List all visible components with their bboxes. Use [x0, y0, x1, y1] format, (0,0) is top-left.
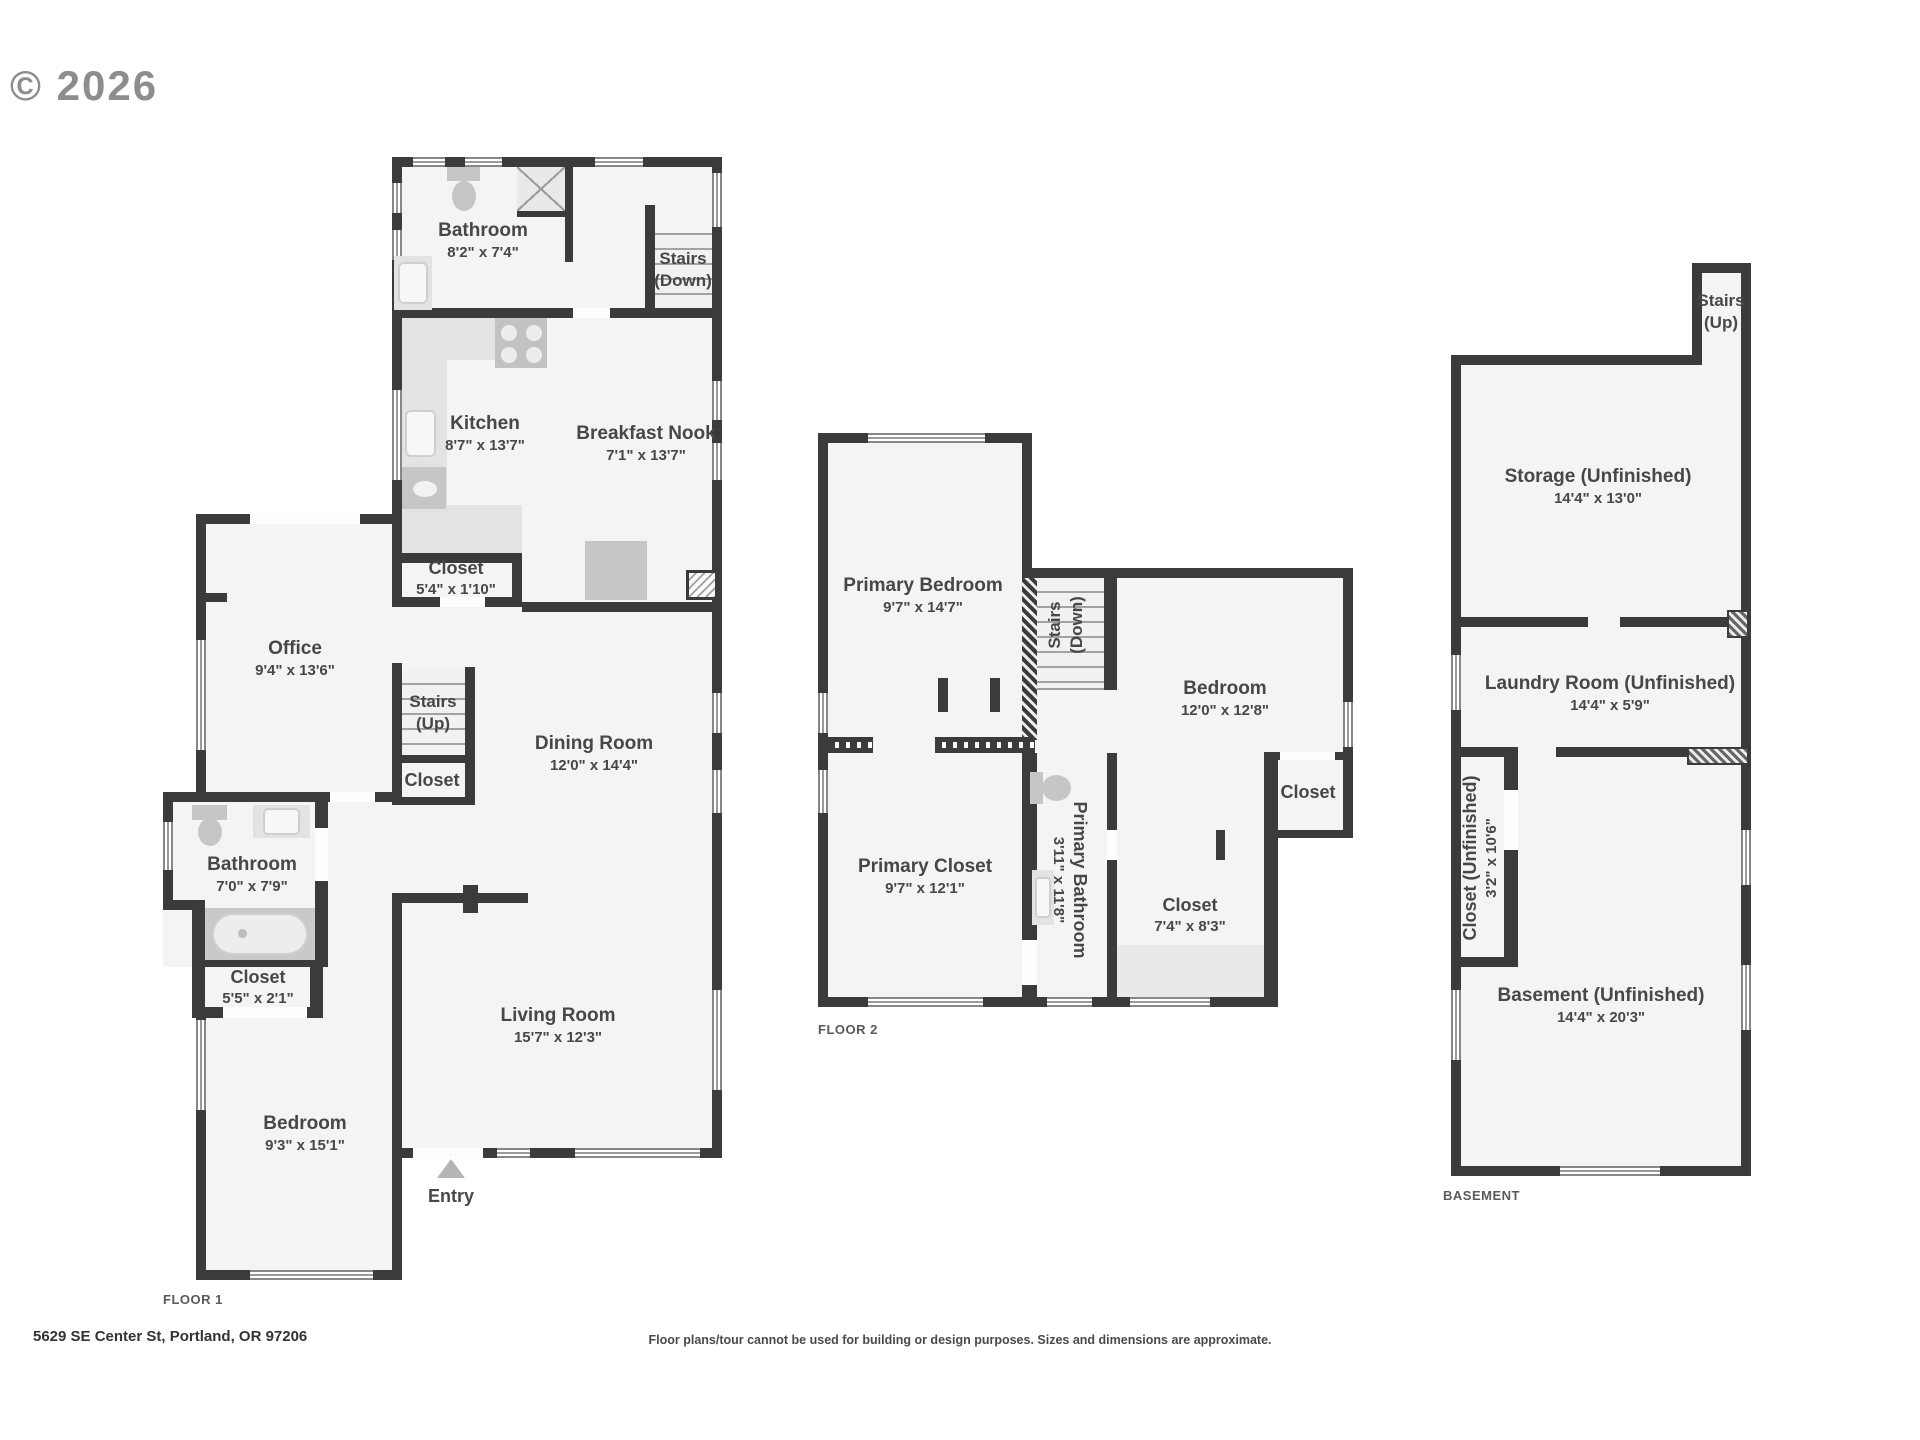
- shower-icon: [517, 167, 565, 211]
- window: [712, 693, 722, 733]
- room-label-closet-f2: Closet 7'4" x 8'3": [1154, 895, 1225, 937]
- wall: [1451, 957, 1518, 967]
- door-opening: [250, 514, 360, 524]
- window: [1451, 655, 1461, 710]
- wall: [1104, 568, 1117, 690]
- stair-edge: [1037, 688, 1104, 690]
- wall-pillar: [1216, 830, 1225, 860]
- window: [712, 173, 722, 227]
- wall: [1022, 433, 1032, 578]
- window: [250, 1270, 373, 1280]
- window: [1741, 830, 1751, 885]
- window: [575, 1148, 700, 1158]
- toilet-icon: [447, 167, 480, 181]
- wall: [1620, 617, 1730, 627]
- window: [868, 997, 983, 1007]
- window: [712, 990, 722, 1090]
- window: [497, 1148, 530, 1158]
- wall: [1451, 355, 1702, 365]
- room-label-bathroom-top: Bathroom 8'2" x 7'4": [438, 219, 528, 263]
- wall: [512, 553, 522, 607]
- wall: [1504, 747, 1518, 967]
- door-opening: [1280, 752, 1335, 760]
- window: [196, 1020, 206, 1110]
- window: [1343, 702, 1353, 747]
- stove-icon: [495, 318, 547, 368]
- disclaimer-text: Floor plans/tour cannot be used for buil…: [648, 1333, 1271, 1347]
- wall-hatched: [1687, 747, 1749, 765]
- wall: [392, 797, 475, 805]
- entry-door-opening: [413, 1148, 483, 1158]
- window: [1560, 1166, 1660, 1176]
- room-fill: [818, 433, 1032, 1007]
- wall: [196, 593, 227, 602]
- wall: [517, 211, 569, 217]
- refrigerator-icon: [585, 541, 647, 600]
- room-label-breakfast-nook: Breakfast Nook 7'1" x 13'7": [576, 422, 715, 466]
- room-label-living-room: Living Room 15'7" x 12'3": [500, 1004, 615, 1048]
- bathtub-drain: [238, 929, 247, 938]
- address-text: 5629 SE Center St, Portland, OR 97206: [33, 1328, 307, 1345]
- wall: [465, 667, 475, 763]
- toilet-icon: [452, 181, 476, 211]
- kitchen-counter: [402, 505, 522, 553]
- window: [392, 390, 402, 480]
- window: [712, 381, 722, 420]
- room-label-bedroom-f2: Bedroom 12'0" x 12'8": [1181, 677, 1269, 721]
- room-label-stairs-down: Stairs (Down): [654, 248, 712, 292]
- basement-label: BASEMENT: [1443, 1188, 1520, 1203]
- entry-arrow-icon: [437, 1159, 465, 1178]
- window: [465, 157, 502, 167]
- dishwasher-icon: [413, 481, 437, 497]
- wall: [1556, 747, 1687, 757]
- room-label-stairs-up-basement: Stairs (Up): [1697, 290, 1744, 334]
- entry-label: Entry: [428, 1186, 474, 1208]
- wall: [1022, 568, 1353, 578]
- chimney: [686, 570, 718, 600]
- room-fill: [318, 795, 402, 1016]
- wall-pillar: [990, 678, 1000, 712]
- floor1-label: FLOOR 1: [163, 1292, 223, 1307]
- wall-pocket: [935, 737, 1035, 753]
- window: [595, 157, 643, 167]
- door-opening: [1107, 830, 1117, 860]
- window: [196, 640, 206, 750]
- room-label-closet-bath: Closet 5'5" x 2'1": [222, 967, 293, 1009]
- wall: [392, 663, 402, 802]
- copyright-watermark: © 2026: [10, 62, 158, 110]
- window: [868, 433, 985, 443]
- room-label-stairs-up: Stairs (Up): [409, 691, 456, 735]
- toilet-icon: [1042, 775, 1071, 801]
- window: [818, 770, 828, 813]
- room-label-bedroom: Bedroom 9'3" x 15'1": [263, 1112, 346, 1156]
- room-label-basement-room: Basement (Unfinished) 14'4" x 20'3": [1498, 984, 1705, 1028]
- room-label-bathroom: Bathroom 7'0" x 7'9": [207, 853, 297, 897]
- wall: [1107, 753, 1117, 1007]
- door-opening: [1504, 790, 1518, 850]
- floor-shading: [1117, 945, 1278, 1002]
- wall: [392, 893, 402, 1280]
- wall: [315, 795, 328, 967]
- window: [1130, 997, 1210, 1007]
- room-label-laundry: Laundry Room (Unfinished) 14'4" x 5'9": [1485, 672, 1735, 716]
- sink-icon: [263, 808, 300, 835]
- wall: [1264, 838, 1278, 1007]
- wall: [1264, 752, 1278, 838]
- wall: [522, 602, 722, 612]
- room-label-closet-hall: Closet: [404, 770, 459, 792]
- wall-hatched: [1022, 578, 1037, 740]
- wall-pocket: [828, 737, 873, 753]
- window: [413, 157, 445, 167]
- wall-pillar: [938, 678, 948, 712]
- kitchen-sink-icon: [405, 410, 436, 457]
- room-label-closet-kitchen: Closet 5'4" x 1'10": [416, 558, 496, 600]
- room-label-stairs-down-f2: Stairs (Down): [1044, 596, 1088, 654]
- room-label-primary-closet: Primary Closet 9'7" x 12'1": [858, 855, 992, 899]
- wall: [392, 308, 722, 318]
- window: [163, 822, 173, 870]
- door-opening: [1022, 940, 1037, 985]
- wall: [1451, 617, 1588, 627]
- wall: [1264, 830, 1353, 838]
- room-label-primary-bathroom: Primary Bathroom 3'11" x 11'8": [1048, 801, 1090, 958]
- room-label-closet-bedroom-f2: Closet: [1280, 782, 1335, 804]
- window: [1451, 990, 1461, 1060]
- window: [1047, 997, 1092, 1007]
- sink-icon: [398, 262, 428, 304]
- toilet-icon: [198, 818, 222, 846]
- room-label-primary-bedroom: Primary Bedroom 9'7" x 14'7": [843, 574, 1002, 618]
- room-label-office: Office 9'4" x 13'6": [255, 637, 335, 681]
- window: [392, 183, 402, 213]
- floorplan-canvas: © 2026: [0, 0, 1920, 1440]
- window: [1741, 965, 1751, 1030]
- room-label-kitchen: Kitchen 8'7" x 13'7": [445, 412, 525, 456]
- wall-pillar: [463, 885, 478, 913]
- window: [712, 770, 722, 813]
- room-label-storage: Storage (Unfinished) 14'4" x 13'0": [1505, 465, 1692, 509]
- door-opening: [573, 308, 610, 318]
- room-label-dining-room: Dining Room 12'0" x 14'4": [535, 732, 653, 776]
- door-opening: [330, 792, 375, 802]
- wall: [1741, 263, 1751, 1176]
- wall: [392, 157, 402, 607]
- floor2-label: FLOOR 2: [818, 1022, 878, 1037]
- wall-hatched: [1727, 610, 1749, 638]
- window: [818, 693, 828, 733]
- door-opening: [315, 828, 328, 881]
- room-label-closet-basement: Closet (Unfinished) 3'2" x 10'6": [1460, 776, 1502, 941]
- wall: [392, 755, 475, 763]
- bathtub-icon: [212, 913, 308, 955]
